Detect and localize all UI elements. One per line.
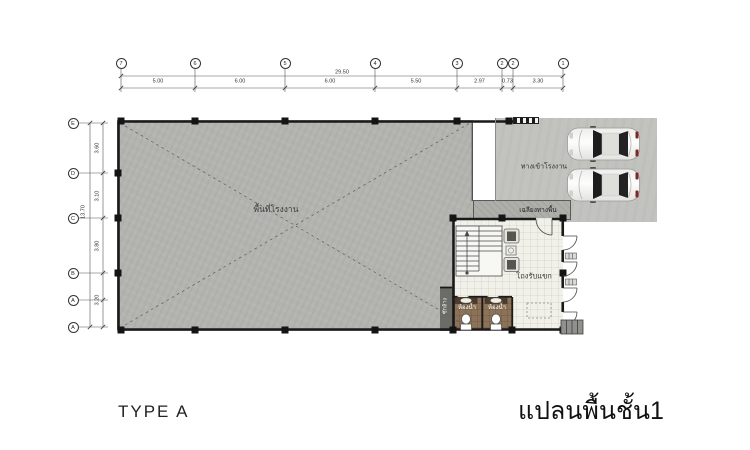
grid-bubble-top-7: 1 <box>558 58 569 69</box>
grid-bubble-top-0: 7 <box>116 58 127 69</box>
entrance-gate-hatch <box>513 117 539 124</box>
grid-bubble-top-5: 2 <box>497 58 508 69</box>
grid-bubble-top-4: 3 <box>452 58 463 69</box>
entrance-label: ทางเข้าโรงงาน <box>521 164 567 171</box>
dim-top-total: 29.50 <box>335 70 349 76</box>
bathroom-2-label: ห้องน้ำ <box>488 305 506 311</box>
type-title: TYPE A <box>118 402 190 422</box>
dim-left-2: 3.80 <box>95 240 101 251</box>
grid-bubble-top-3: 4 <box>370 58 381 69</box>
dim-top-3: 5.50 <box>411 79 422 85</box>
factory-floor-area <box>117 120 473 331</box>
floor-plan: พื้นที่โรงงาน ทางเข้าโรงงาน เฉลียงทางพื้… <box>0 0 750 450</box>
grid-bubble-left-5: A <box>68 322 79 333</box>
dim-left-1: 3.10 <box>95 190 101 201</box>
dim-left-total: 13.70 <box>81 205 87 219</box>
meter-box-icon <box>566 253 577 285</box>
bathroom-2-area <box>483 297 512 330</box>
grid-bubble-left-4: A <box>68 295 79 306</box>
dim-top-0: 5.00 <box>153 79 164 85</box>
dim-top-1: 6.00 <box>235 79 246 85</box>
factory-area-label: พื้นที่โรงงาน <box>253 205 298 214</box>
dim-top-4: 2.97 <box>474 79 485 85</box>
dim-top-2: 6.00 <box>325 79 336 85</box>
dim-top-5: 0.73 <box>502 79 513 85</box>
grid-bubble-top-1: 6 <box>190 58 201 69</box>
dim-left-3: 3.20 <box>95 295 101 306</box>
dim-top-6: 3.30 <box>533 79 544 85</box>
grid-bubble-left-0: E <box>68 118 79 129</box>
entry-steps <box>561 320 583 334</box>
grid-bubble-left-3: B <box>68 268 79 279</box>
grid-bubble-left-2: C <box>68 213 79 224</box>
reception-hall-label: โถงรับแขก <box>516 272 552 280</box>
dim-left-0: 3.60 <box>95 143 101 154</box>
porch-label: เฉลียงทางพื้น <box>519 208 556 215</box>
grid-bubble-top-6: 2 <box>508 58 519 69</box>
service-strip-label: ซักล้าง <box>443 298 449 314</box>
plan-title: แปลนพื้นชั้น1 <box>518 391 664 431</box>
bathroom-1-label: ห้องน้ำ <box>458 305 476 311</box>
grid-bubble-left-1: D <box>68 168 79 179</box>
grid-bubble-top-2: 5 <box>280 58 291 69</box>
bathroom-1-area <box>453 297 482 330</box>
